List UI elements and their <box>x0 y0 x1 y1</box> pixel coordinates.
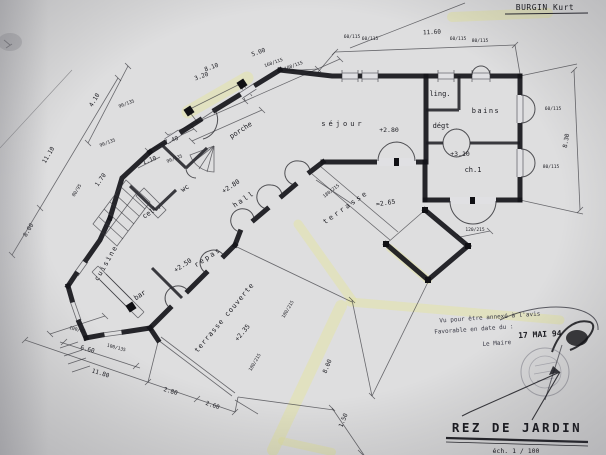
floor-plan-canvas: séjour +2.80 ling. bains dégt +3.10 ch.1… <box>0 0 606 455</box>
photo-vignette <box>0 0 606 455</box>
floorplan-photo: séjour +2.80 ling. bains dégt +3.10 ch.1… <box>0 0 606 455</box>
